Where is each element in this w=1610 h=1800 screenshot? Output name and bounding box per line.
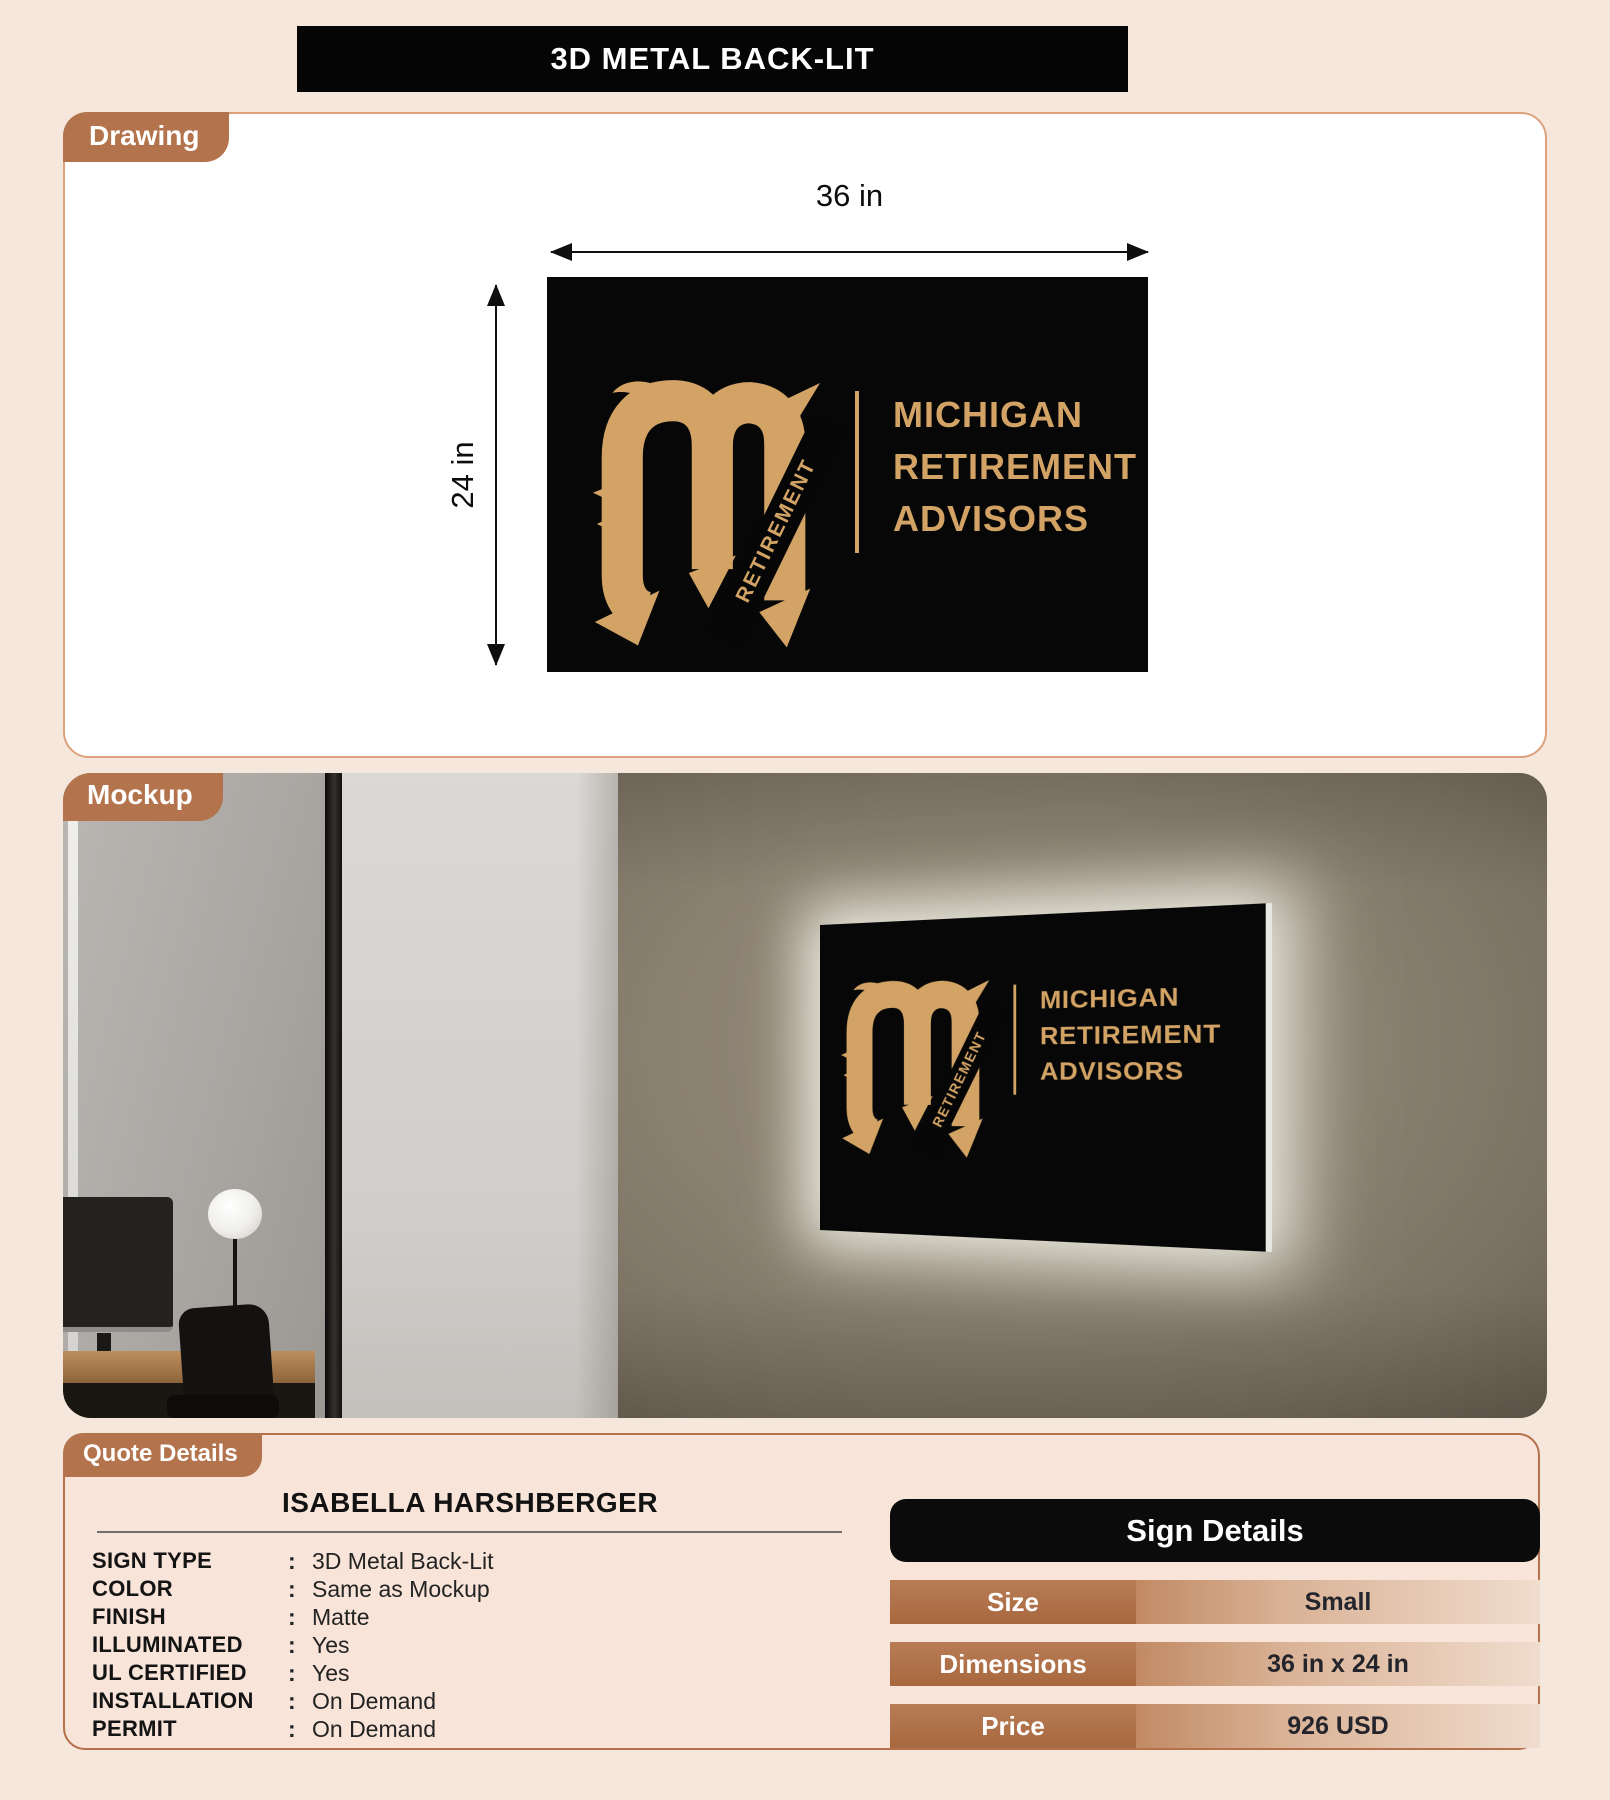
logo-line-2: RETIREMENT [893, 441, 1137, 493]
sign-mockup-backlit: RETIREMENT MICHIGAN RETIREMENT ADVISORS [820, 903, 1272, 1252]
field-key: SIGN TYPE [92, 1548, 288, 1574]
field-value: Yes [312, 1660, 350, 1687]
field-value: On Demand [312, 1688, 436, 1715]
logo-wordmark: MICHIGAN RETIREMENT ADVISORS [1040, 977, 1221, 1090]
office-chair-back [178, 1303, 274, 1405]
field-key: UL CERTIFIED [92, 1660, 288, 1686]
office-scene: RETIREMENT MICHIGAN RETIREMENT ADVISORS [63, 773, 1547, 1418]
logo-line-1: MICHIGAN [893, 389, 1137, 441]
quote-details-panel: Quote Details ISABELLA HARSHBERGER SIGN … [63, 1433, 1540, 1750]
field-separator: : [288, 1688, 312, 1715]
row-label: Size [890, 1580, 1136, 1624]
quote-fields: SIGN TYPE : 3D Metal Back-Lit COLOR : Sa… [92, 1547, 852, 1743]
quote-field-row: UL CERTIFIED : Yes [92, 1659, 852, 1687]
quote-field-row: FINISH : Matte [92, 1603, 852, 1631]
logo-divider [1013, 985, 1016, 1095]
field-value: Matte [312, 1604, 370, 1631]
logo-line-3: ADVISORS [1040, 1052, 1221, 1090]
field-value: Yes [312, 1632, 350, 1659]
field-separator: : [288, 1576, 312, 1603]
field-key: ILLUMINATED [92, 1632, 288, 1658]
quote-field-row: SIGN TYPE : 3D Metal Back-Lit [92, 1547, 852, 1575]
table-row: Size Small [890, 1580, 1540, 1624]
glass-partition [63, 773, 325, 1418]
drawing-tab: Drawing [63, 112, 229, 162]
row-value: 36 in x 24 in [1136, 1642, 1540, 1686]
table-row: Dimensions 36 in x 24 in [890, 1642, 1540, 1686]
logo-divider [855, 391, 859, 553]
field-value: On Demand [312, 1716, 436, 1743]
field-key: FINISH [92, 1604, 288, 1630]
field-separator: : [288, 1548, 312, 1575]
partition-frame [325, 773, 342, 1418]
field-separator: : [288, 1604, 312, 1631]
width-dimension-label: 36 in [551, 178, 1148, 214]
monitor [63, 1197, 173, 1332]
field-separator: : [288, 1660, 312, 1687]
logo-line-1: MICHIGAN [1040, 977, 1221, 1018]
name-divider [97, 1531, 842, 1533]
quote-field-row: INSTALLATION : On Demand [92, 1687, 852, 1715]
logo-michigan-retirement-advisors: RETIREMENT MICHIGAN RETIREMENT ADVISORS [587, 355, 1147, 655]
sign-drawing: RETIREMENT MICHIGAN RETIREMENT ADVISORS [547, 277, 1148, 672]
field-separator: : [288, 1716, 312, 1743]
row-value: Small [1136, 1580, 1540, 1624]
quote-field-row: ILLUMINATED : Yes [92, 1631, 852, 1659]
mockup-panel: Mockup [63, 773, 1547, 1418]
field-key: INSTALLATION [92, 1688, 288, 1714]
row-label: Dimensions [890, 1642, 1136, 1686]
quote-field-row: COLOR : Same as Mockup [92, 1575, 852, 1603]
drawing-panel: Drawing 36 in 24 in [63, 112, 1547, 758]
row-value: 926 USD [1136, 1704, 1540, 1748]
customer-name: ISABELLA HARSHBERGER [95, 1487, 845, 1519]
field-key: COLOR [92, 1576, 288, 1602]
logo-line-3: ADVISORS [893, 493, 1137, 545]
quote-sheet-page: 3D METAL BACK-LIT Drawing 36 in 24 in [0, 0, 1610, 1800]
floor-lamp-shade [208, 1189, 262, 1239]
light-wall [342, 773, 618, 1418]
width-dimension-arrow [551, 251, 1148, 253]
field-key: PERMIT [92, 1716, 288, 1742]
row-label: Price [890, 1704, 1136, 1748]
mockup-tab: Mockup [63, 773, 223, 821]
logo-michigan-retirement-advisors: RETIREMENT MICHIGAN RETIREMENT ADVISORS [837, 953, 1229, 1170]
page-title-bar: 3D METAL BACK-LIT [297, 26, 1128, 92]
quote-field-row: PERMIT : On Demand [92, 1715, 852, 1743]
quote-details-tab: Quote Details [63, 1433, 262, 1477]
sign-details-header: Sign Details [890, 1499, 1540, 1562]
logo-line-2: RETIREMENT [1040, 1015, 1221, 1054]
page-title: 3D METAL BACK-LIT [550, 41, 874, 77]
height-dimension-arrow [495, 285, 497, 665]
field-value: 3D Metal Back-Lit [312, 1548, 494, 1575]
table-row: Price 926 USD [890, 1704, 1540, 1748]
field-value: Same as Mockup [312, 1576, 490, 1603]
logo-wordmark: MICHIGAN RETIREMENT ADVISORS [893, 389, 1137, 545]
office-chair-seat [167, 1395, 279, 1418]
field-separator: : [288, 1632, 312, 1659]
sign-details-table: Sign Details Size Small Dimensions 36 in… [890, 1499, 1540, 1748]
